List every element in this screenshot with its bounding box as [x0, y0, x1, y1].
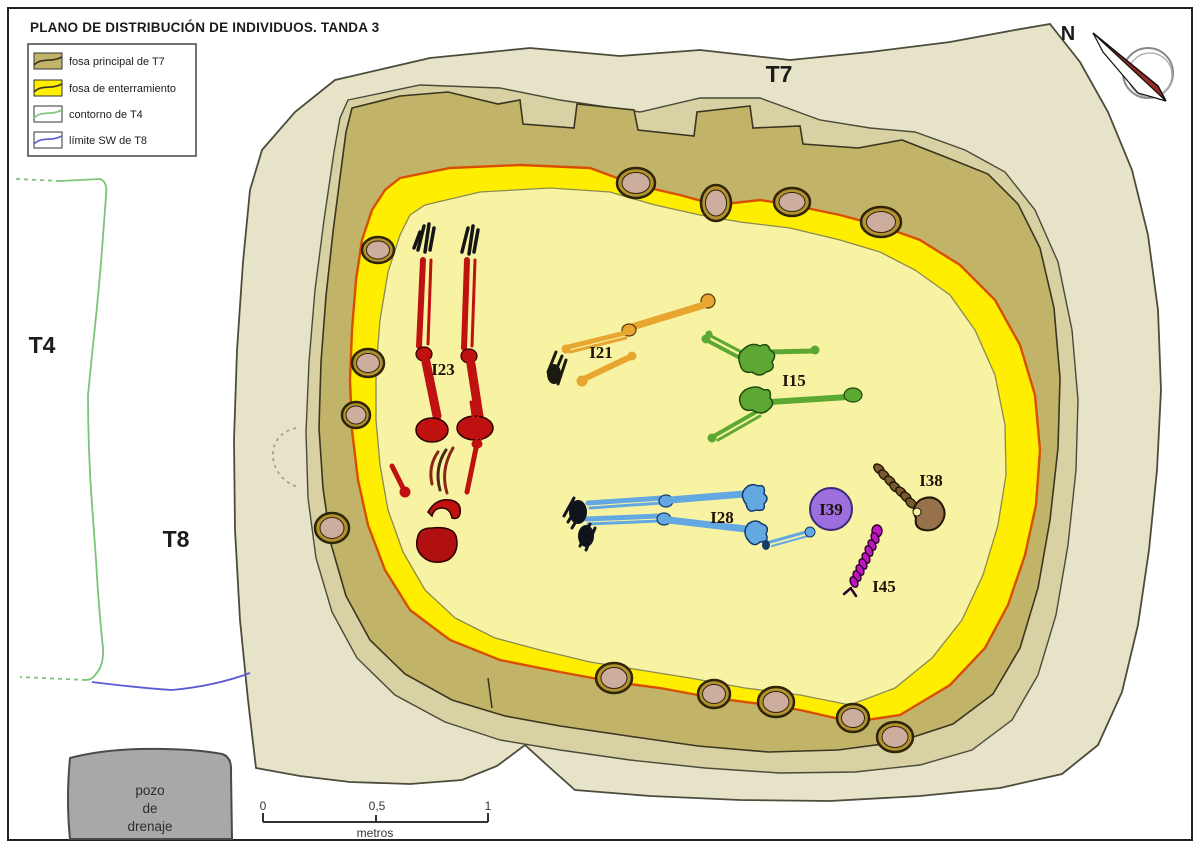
legend: fosa principal de T7 fosa de enterramien…: [28, 44, 196, 156]
trench-label-t8: T8: [163, 526, 190, 552]
north-label: N: [1061, 23, 1075, 45]
stone: [352, 349, 384, 377]
stone: [596, 663, 632, 693]
legend-swatch-fosa-principal: [34, 53, 62, 69]
legend-swatch-limite-t8: [34, 132, 62, 148]
legend-label-limite-t8: límite SW de T8: [69, 135, 147, 147]
individual-label-I38: I38: [919, 471, 943, 490]
stone: [861, 207, 901, 237]
stone: [774, 188, 810, 216]
legend-label-contorno-t4: contorno de T4: [69, 109, 143, 121]
legend-label-fosa-principal: fosa principal de T7: [69, 56, 165, 68]
legend-swatch-contorno-t4: [34, 106, 62, 122]
stone: [758, 687, 794, 717]
scale-unit-label: metros: [357, 826, 394, 840]
scale-tick-05: 0,5: [369, 799, 386, 813]
stone: [342, 402, 370, 428]
stone: [701, 185, 731, 221]
stone: [617, 168, 655, 198]
legend-swatch-fosa-enterramiento: [34, 80, 62, 96]
drainage-well-label-line2: de: [142, 801, 157, 816]
drainage-well-label-line3: drenaje: [127, 819, 172, 834]
stone: [362, 237, 394, 263]
scale-tick-1: 1: [485, 799, 492, 813]
stone: [315, 513, 349, 543]
stone: [698, 680, 730, 708]
individual-label-I45: I45: [872, 577, 896, 596]
drainage-well: pozo de drenaje: [68, 749, 232, 839]
individual-label-I23: I23: [431, 360, 455, 379]
individual-label-I39: I39: [819, 500, 843, 519]
site-plan-figure: I23 I21 I15 I28 I39 I38 I45 T7 T4 T8 poz…: [0, 0, 1200, 848]
legend-label-fosa-enterramiento: fosa de enterramiento: [69, 83, 176, 95]
trench-label-t4: T4: [29, 332, 56, 358]
individual-label-I21: I21: [589, 343, 613, 362]
stone: [837, 704, 869, 732]
site-plan-svg: I23 I21 I15 I28 I39 I38 I45 T7 T4 T8 poz…: [0, 0, 1200, 848]
scale-tick-0: 0: [260, 799, 267, 813]
drainage-well-label-line1: pozo: [135, 783, 164, 798]
trench-label-t7: T7: [766, 61, 793, 87]
individual-label-I15: I15: [782, 371, 806, 390]
page-title: PLANO DE DISTRIBUCIÓN DE INDIVIDUOS. TAN…: [30, 20, 380, 35]
stone: [877, 722, 913, 752]
individual-label-I28: I28: [710, 508, 734, 527]
